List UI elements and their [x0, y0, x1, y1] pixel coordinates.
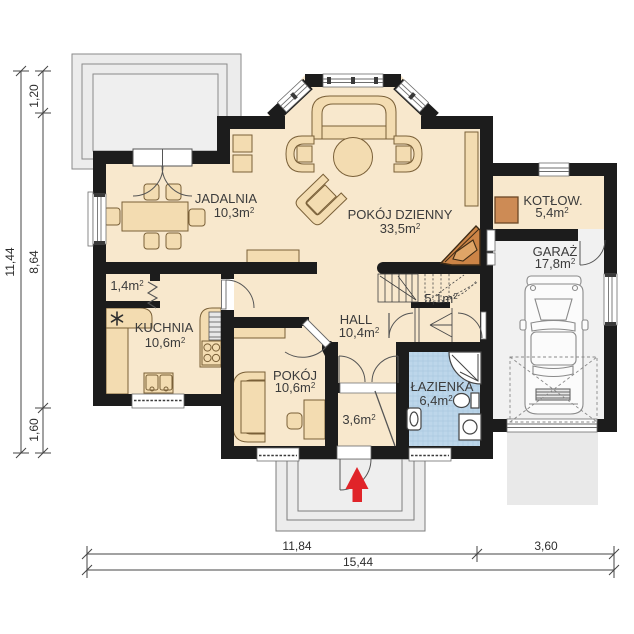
- svg-text:JADALNIA: JADALNIA: [195, 191, 257, 206]
- svg-text:ŁAZIENKA: ŁAZIENKA: [411, 379, 474, 394]
- svg-text:3,60: 3,60: [534, 539, 558, 553]
- svg-text:10,6m2: 10,6m2: [275, 380, 316, 395]
- svg-text:KUCHNIA: KUCHNIA: [135, 320, 194, 335]
- svg-text:5,1m2: 5,1m2: [424, 291, 458, 306]
- svg-text:15,44: 15,44: [343, 555, 373, 569]
- svg-text:5,4m2: 5,4m2: [535, 205, 569, 220]
- svg-text:11,44: 11,44: [3, 247, 17, 276]
- svg-text:33,5m2: 33,5m2: [380, 221, 421, 236]
- svg-text:17,8m2: 17,8m2: [535, 256, 576, 271]
- svg-text:10,3m2: 10,3m2: [214, 205, 255, 220]
- svg-text:1,4m2: 1,4m2: [110, 278, 144, 293]
- svg-text:1,60: 1,60: [27, 418, 41, 442]
- svg-text:1,20: 1,20: [27, 84, 41, 108]
- svg-text:10,6m2: 10,6m2: [145, 335, 186, 350]
- svg-text:6,4m2: 6,4m2: [419, 393, 453, 408]
- svg-text:POKÓJ DZIENNY: POKÓJ DZIENNY: [348, 207, 453, 222]
- svg-text:11,84: 11,84: [282, 539, 311, 553]
- svg-text:3,6m2: 3,6m2: [342, 412, 376, 427]
- svg-text:8,64: 8,64: [27, 250, 41, 274]
- svg-text:10,4m2: 10,4m2: [339, 325, 380, 340]
